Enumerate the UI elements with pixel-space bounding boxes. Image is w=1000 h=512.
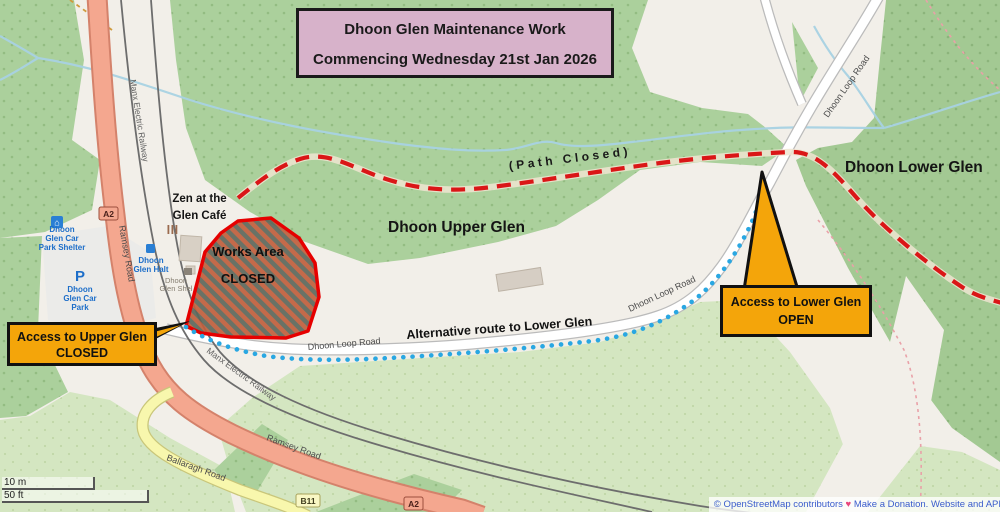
osm-copyright-link[interactable]: © OpenStreetMap contributors: [714, 499, 843, 510]
a2-shield-south-label: A2: [408, 499, 419, 509]
title-box: Dhoon Glen Maintenance Work Commencing W…: [296, 8, 614, 78]
parking-icon: P: [75, 268, 85, 285]
a2-shield-label: A2: [103, 209, 114, 219]
car-park-label-3: Park: [71, 303, 89, 312]
works-area-closed-label: CLOSED: [193, 271, 303, 286]
car-park-shelter-label-1: Dhoon: [49, 225, 74, 234]
website-api-link[interactable]: Website and API: [931, 499, 1000, 510]
donation-link[interactable]: Make a Donation.: [854, 499, 928, 510]
title-line-2: Commencing Wednesday 21st Jan 2026: [299, 51, 611, 68]
title-line-1: Dhoon Glen Maintenance Work: [299, 21, 611, 38]
cafe-label-line-2: Glen Café: [152, 208, 247, 225]
car-park-shelter-label-2: Glen Car: [45, 234, 78, 243]
car-park-label-1: Dhoon: [67, 285, 92, 294]
works-area-label: Works Area: [193, 244, 303, 259]
cafe-icon: [168, 225, 178, 234]
glen-shelter-label-2: Glen Shel: [160, 284, 193, 293]
scale-imperial: 50 ft: [2, 490, 149, 503]
attribution-bar: © OpenStreetMap contributors ♥ Make a Do…: [709, 497, 1000, 512]
car-park-shelter-label-3: Park Shelter: [39, 243, 86, 252]
upper-glen-label: Dhoon Upper Glen: [388, 219, 525, 237]
heart-icon: ♥: [846, 499, 852, 510]
halt-label-1: Dhoon: [138, 256, 163, 265]
lower-callout-line-1: Access to Lower Glen: [723, 295, 869, 309]
cafe-label-line-1: Zen at the: [152, 191, 247, 208]
lower-callout-line-2: OPEN: [723, 313, 869, 327]
lower-glen-callout: Access to Lower Glen OPEN: [720, 285, 872, 337]
upper-callout-line-2: CLOSED: [10, 346, 154, 360]
glen-shelter-icon: [184, 268, 192, 275]
b11-shield-label: B11: [300, 496, 315, 506]
scale-metric: 10 m: [2, 477, 95, 490]
upper-callout-line-1: Access to Upper Glen: [10, 330, 154, 344]
car-park-label-2: Glen Car: [63, 294, 96, 303]
halt-icon: [146, 244, 155, 253]
lower-glen-label: Dhoon Lower Glen: [845, 159, 983, 177]
upper-glen-callout: Access to Upper Glen CLOSED: [7, 322, 157, 366]
cafe-label: Zen at the Glen Café: [152, 191, 247, 225]
map-canvas[interactable]: A2 A2 B11 Ramsey Road Ramsey Road Ballar…: [0, 0, 1000, 512]
halt-label-2: Glen Halt: [133, 265, 168, 274]
scale-control: 10 m 50 ft: [2, 477, 149, 503]
